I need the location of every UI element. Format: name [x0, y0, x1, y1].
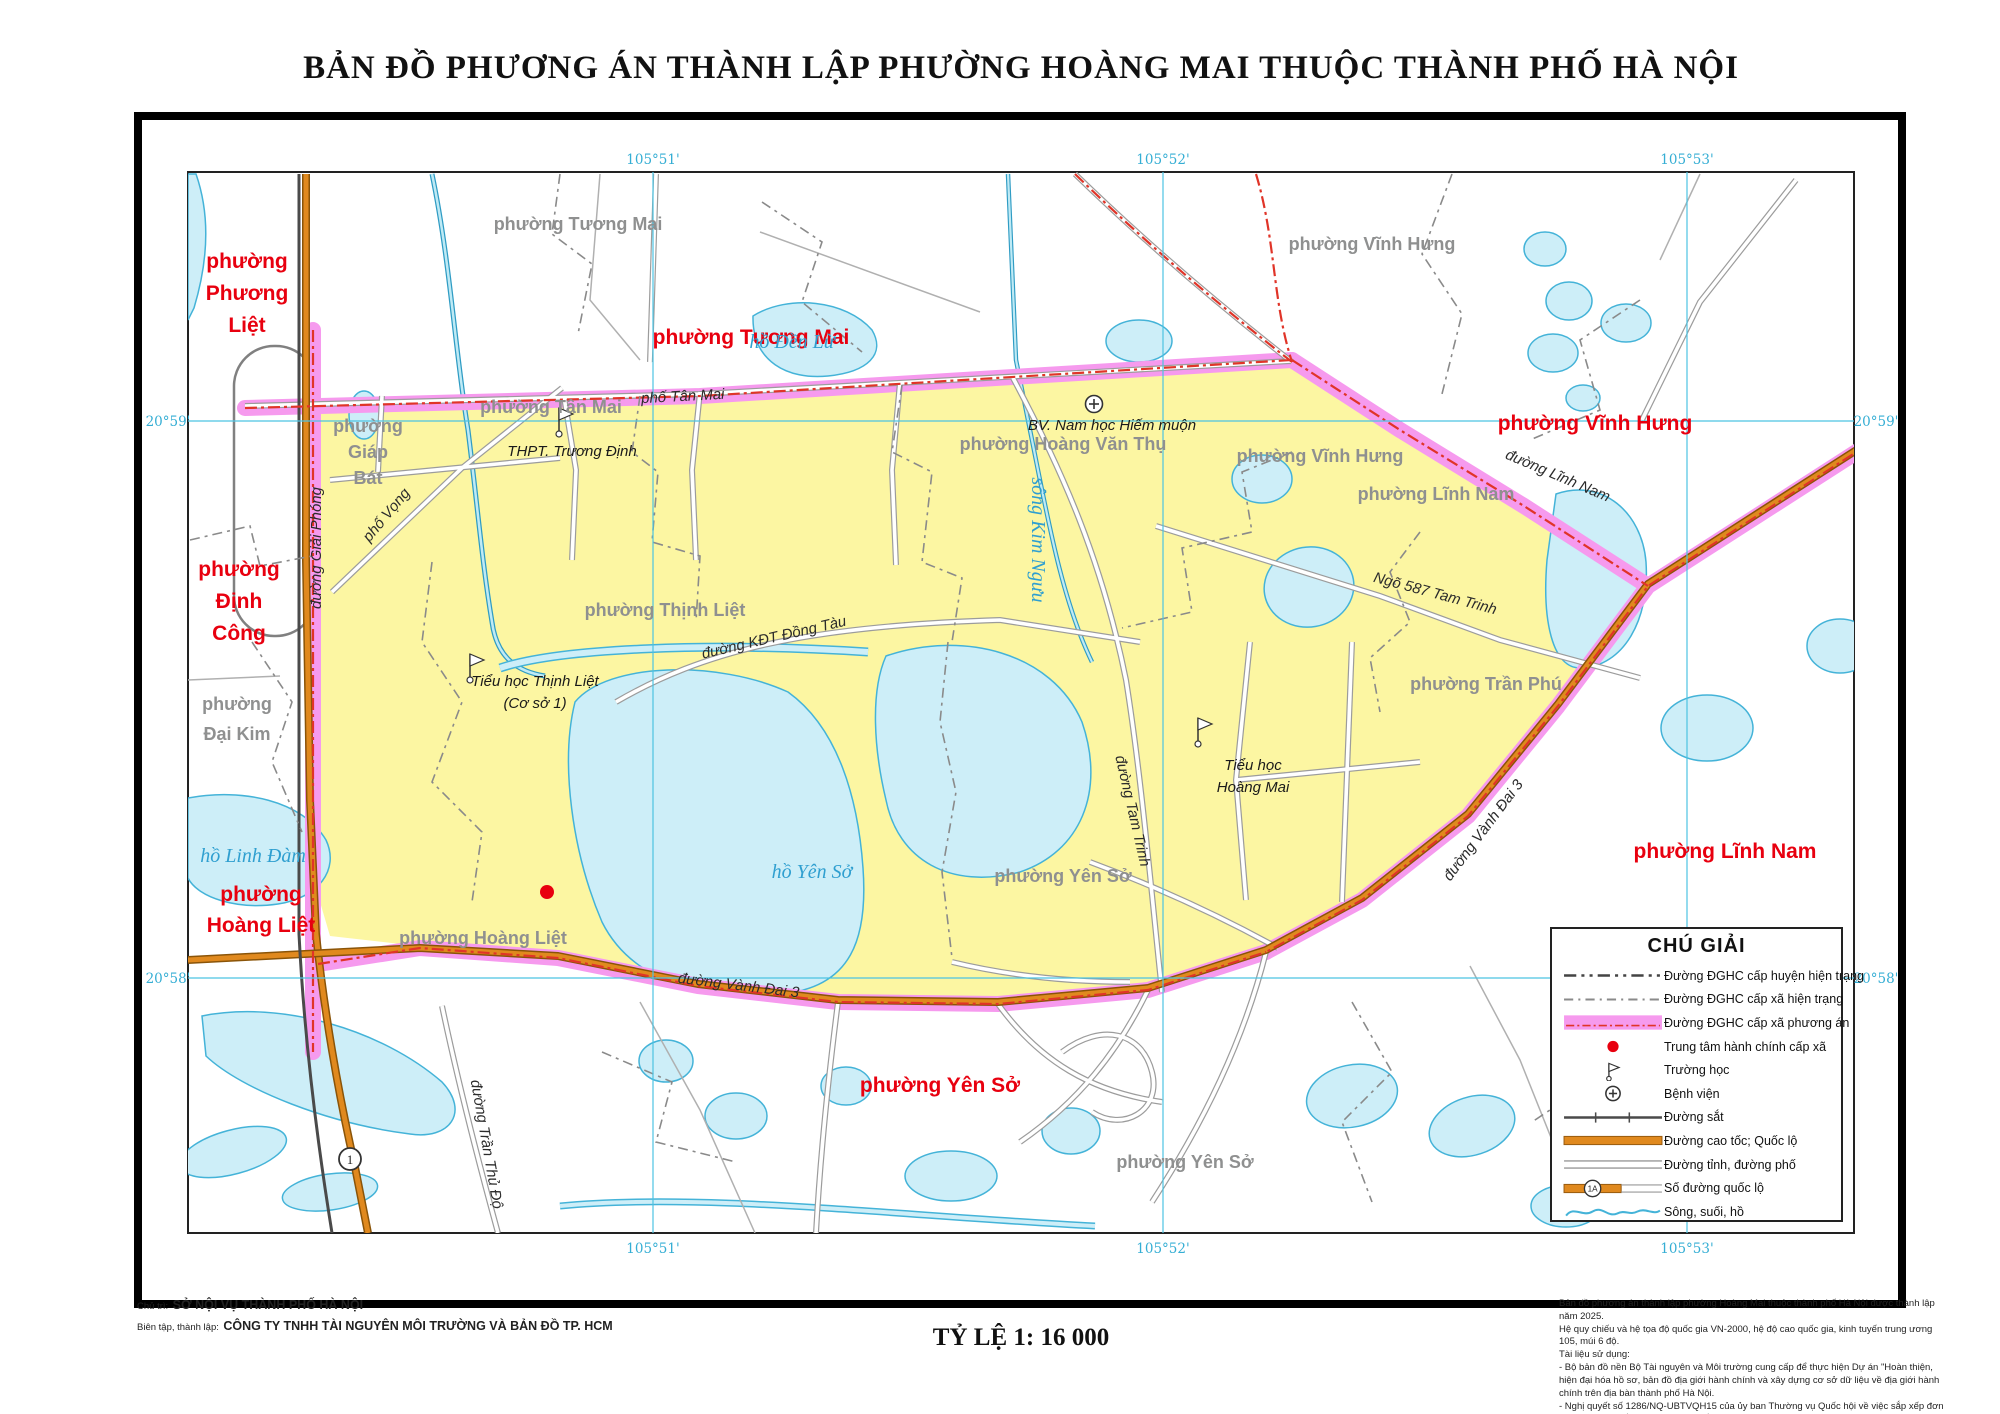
- ward-label-current: phường Tân Mai: [480, 397, 622, 417]
- ward-label-current: phường Thịnh Liệt: [585, 600, 746, 620]
- legend-item-label: Đường ĐGHC cấp xã hiện trạng: [1664, 992, 1843, 1006]
- ward-label-proposed: phường Lĩnh Nam: [1634, 840, 1817, 863]
- ward-label-proposed-line: Phương: [206, 282, 289, 305]
- ward-label-current-line: Đại Kim: [203, 724, 270, 744]
- legend-symbol-street: [1562, 1154, 1664, 1175]
- legend-item-label: Trung tâm hành chính cấp xã: [1664, 1040, 1826, 1054]
- legend-item: 1ASố đường quốc lộ: [1562, 1176, 1831, 1200]
- school-label-line: THPT. Trương Định: [507, 443, 636, 460]
- note-line: - Nghị quyết số 1286/NQ-UBTVQH15 của ủy …: [1559, 1401, 1953, 1414]
- note-line: Bản đồ phương án thành lập phường Hoàng …: [1559, 1298, 1953, 1324]
- legend-item-label: Đường ĐGHC cấp huyện hiện trạng: [1664, 969, 1864, 983]
- school-label-line: Hoàng Mai: [1217, 779, 1290, 796]
- lat-label-left: 20°59': [146, 414, 191, 430]
- lat-label-left: 20°58': [146, 971, 191, 987]
- school-label-line: Tiểu học Thịnh Liệt: [471, 673, 599, 690]
- hospital-icon: [1086, 396, 1103, 413]
- road-label: đường Giải Phóng: [308, 486, 325, 609]
- credit-value-1: SỞ NỘI VỤ THÀNH PHỐ HÀ NỘI: [173, 1298, 364, 1312]
- ward-label-current: phường Vĩnh Hưng: [1237, 446, 1404, 466]
- water-label: hồ Linh Đàm: [200, 845, 306, 867]
- map-sheet: BẢN ĐỒ PHƯƠNG ÁN THÀNH LẬP PHƯỜNG HOÀNG …: [0, 0, 2000, 1414]
- ward-label-proposed: phường Vĩnh Hưng: [1498, 412, 1693, 435]
- ward-label-current: phường Hoàng Văn Thụ: [960, 434, 1167, 454]
- admin-center-dot: [540, 885, 554, 899]
- ward-label-current-line: phường: [333, 416, 403, 436]
- ward-label-current: phường Tương Mai: [494, 214, 663, 234]
- ward-label-current: phường Yên Sở: [994, 866, 1132, 886]
- legend-item-label: Số đường quốc lộ: [1664, 1181, 1764, 1195]
- ward-label-proposed-line: Công: [212, 622, 266, 645]
- legend-badge-text: 1A: [1588, 1184, 1599, 1193]
- legend-item-label: Trường học: [1664, 1063, 1729, 1077]
- legend-box: CHÚ GIẢI Đường ĐGHC cấp huyện hiện trạng…: [1550, 927, 1843, 1222]
- legend-symbol-school: [1562, 1060, 1664, 1081]
- legend-item: Sông, suối, hồ: [1562, 1200, 1831, 1224]
- ward-label-current-line: phường: [202, 694, 272, 714]
- water-label: sông Kim Ngưu: [1027, 477, 1049, 602]
- legend-symbol-hospital: [1562, 1083, 1664, 1104]
- ward-label-current: phường Vĩnh Hưng: [1289, 234, 1456, 254]
- lat-label-right: 20°59': [1854, 414, 1899, 430]
- ward-label-current: phường Hoàng Liệt: [399, 928, 567, 948]
- note-line: Tài liệu sử dụng:: [1559, 1349, 1953, 1362]
- legend-item-label: Đường tỉnh, đường phố: [1664, 1158, 1796, 1172]
- legend-item: Đường ĐGHC cấp huyện hiện trạng: [1562, 964, 1831, 988]
- note-line: - Bộ bản đồ nền Bộ Tài nguyên và Môi trư…: [1559, 1362, 1953, 1400]
- legend-item-label: Đường sắt: [1664, 1110, 1724, 1124]
- ward-label-current: phường Lĩnh Nam: [1358, 484, 1515, 504]
- ward-label-current-line: Bát: [353, 468, 382, 488]
- ward-label-current: phường Yên Sở: [1116, 1152, 1254, 1172]
- legend-item: Đường sắt: [1562, 1106, 1831, 1130]
- ward-label-proposed-line: Hoàng Liệt: [207, 914, 316, 937]
- hospital-label: BV. Nam học Hiếm muộn: [1028, 417, 1196, 434]
- lon-label-top: 105°53': [1660, 152, 1713, 168]
- legend-item-label: Đường ĐGHC cấp xã phương án: [1664, 1016, 1849, 1030]
- school-label-line: Tiểu học: [1224, 757, 1282, 774]
- legend-symbol-water: [1562, 1201, 1664, 1222]
- ward-label-current-line: Giáp: [348, 442, 388, 462]
- ward-label-proposed-line: phường: [206, 250, 287, 273]
- legend-item: Đường cao tốc; Quốc lộ: [1562, 1129, 1831, 1153]
- ward-label-current: phường Trần Phú: [1410, 674, 1562, 694]
- lon-label-top: 105°51': [626, 152, 679, 168]
- legend-symbol-highway: [1562, 1130, 1664, 1151]
- legend-item-label: Sông, suối, hồ: [1664, 1205, 1744, 1219]
- legend-symbol-dash-huyen: [1562, 965, 1664, 986]
- legend-symbol-route-badge: 1A: [1562, 1178, 1664, 1199]
- ward-label-proposed-line: phường: [198, 558, 279, 581]
- route-number-text: 1: [347, 1152, 354, 1167]
- lon-label-bottom: 105°51': [626, 1241, 679, 1257]
- ward-label-proposed: phường Yên Sở: [860, 1074, 1020, 1097]
- note-line: Hệ quy chiếu và hệ tọa độ quốc gia VN-20…: [1559, 1324, 1953, 1350]
- lon-label-bottom: 105°52': [1136, 1241, 1189, 1257]
- legend-symbol-red-dot: [1562, 1036, 1664, 1057]
- lon-label-top: 105°52': [1136, 152, 1189, 168]
- legend-item: Đường ĐGHC cấp xã phương án: [1562, 1011, 1831, 1035]
- map-title: BẢN ĐỒ PHƯƠNG ÁN THÀNH LẬP PHƯỜNG HOÀNG …: [188, 50, 1854, 87]
- legend-item: Bệnh viện: [1562, 1082, 1831, 1106]
- credit-role-1: Chủ trì:: [137, 1301, 168, 1312]
- legend-title: CHÚ GIẢI: [1562, 935, 1831, 958]
- legend-item: Trường học: [1562, 1058, 1831, 1082]
- ward-label-proposed-line: Định: [216, 590, 263, 613]
- legend-symbol-dash-xa: [1562, 989, 1664, 1010]
- ward-label-proposed-line: phường: [220, 883, 301, 906]
- ward-label-proposed-line: Liệt: [228, 314, 265, 337]
- legend-item: Đường tỉnh, đường phố: [1562, 1153, 1831, 1177]
- legend-symbol-railway: [1562, 1107, 1664, 1128]
- legend-item-label: Bệnh viện: [1664, 1087, 1720, 1101]
- legend-item: Trung tâm hành chính cấp xã: [1562, 1035, 1831, 1059]
- lon-label-bottom: 105°53': [1660, 1241, 1713, 1257]
- legend-symbol-pink-band: [1562, 1012, 1664, 1033]
- school-label-line: (Cơ sở 1): [503, 695, 566, 712]
- school-label: THPT. Trương Định: [507, 443, 636, 460]
- legend-item-label: Đường cao tốc; Quốc lộ: [1664, 1134, 1797, 1148]
- legend-item: Đường ĐGHC cấp xã hiện trạng: [1562, 988, 1831, 1012]
- water-label: hồ Yên Sở: [772, 861, 854, 883]
- water-label: hồ Đền Lừ: [749, 331, 836, 353]
- map-notes: Bản đồ phương án thành lập phường Hoàng …: [1559, 1298, 1953, 1414]
